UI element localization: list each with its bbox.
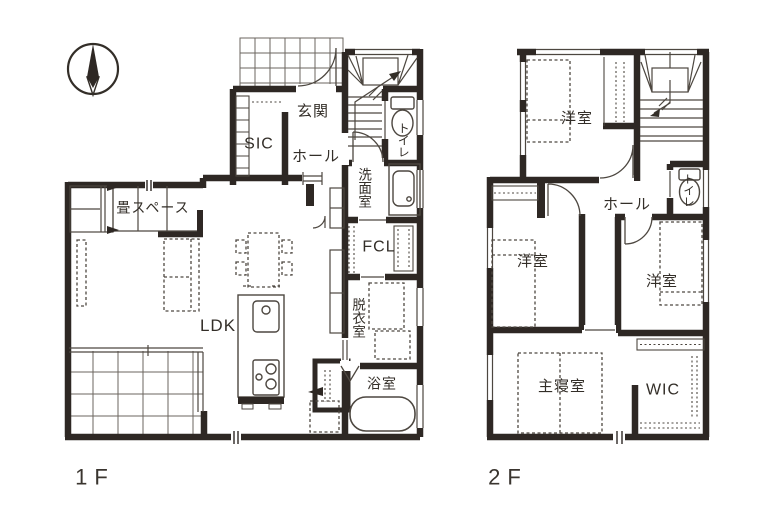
room-label-sic: SIC [244,137,274,154]
sofa-icon [164,239,199,311]
north-compass-icon [68,44,118,95]
storage-closet-detail [308,370,330,402]
bathtub-icon [350,397,415,431]
room-label-wic: WIC [646,383,680,400]
stairs-icon [640,52,703,141]
wall-stub [197,210,203,237]
room-label-bedroom1: 洋室 [561,111,593,127]
sink-icon [253,301,279,332]
floor-caption-2f: 2F [488,465,528,488]
room-label-genkan: 玄関 [297,104,329,120]
deck-tile-grid [69,351,203,436]
room-label-fcl: FCL [362,240,395,257]
porch-tile-grid [240,38,343,88]
walls-2f [487,52,709,437]
room-label-bath: 浴室 [367,377,397,392]
room-label-ldk: LDK [200,317,236,335]
room-label-dressing: 脱衣室 [350,298,364,339]
kitchen-island-icon [238,295,284,409]
room-label-bedroom3: 洋室 [646,274,678,290]
room-label-hall-2f: ホール [603,197,651,213]
floor-caption-1f: 1F [75,465,115,488]
floor-plan-page: 玄関 SIC ホール トイレ 洗面室 FCL 脱衣室 浴室 LDK 畳スペース … [0,0,780,520]
room-label-toilet-1f: トイレ [397,122,410,158]
room-label-washroom: 洗面室 [356,168,370,209]
stove-icon [253,360,279,395]
dining-table-icon [236,233,292,287]
washing-machine-icon [369,283,410,359]
room-label-master: 主寝室 [538,379,586,395]
room-label-bedroom2: 洋室 [517,254,549,270]
room-label-hall-1f: ホール [292,149,340,165]
floorplan-drawing [0,0,780,520]
room-label-tatami: 畳スペース [116,201,189,216]
tv-board-icon [77,240,86,306]
room-label-toilet-2f: トイレ [682,173,694,208]
